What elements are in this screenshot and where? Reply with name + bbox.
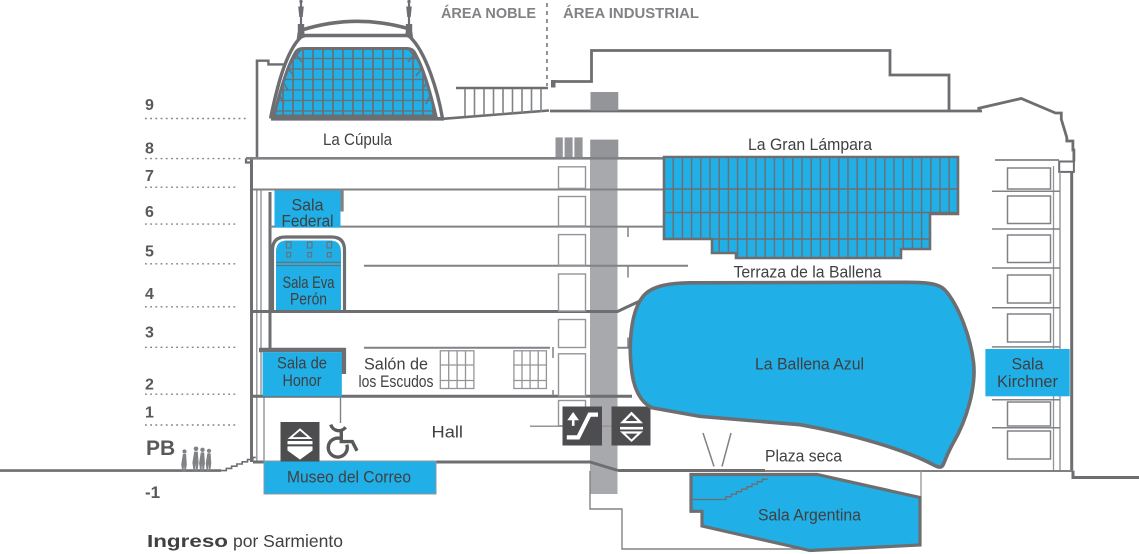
svg-text:Honor: Honor [283,371,322,390]
svg-text:PB: PB [146,437,175,460]
svg-text:La Gran Lámpara: La Gran Lámpara [748,135,873,154]
svg-text:Plaza seca: Plaza seca [765,447,842,466]
svg-text:2: 2 [145,377,154,394]
svg-text:ÁREA INDUSTRIAL: ÁREA INDUSTRIAL [563,5,699,22]
svg-text:Sala: Sala [1012,355,1045,374]
svg-text:Salón de: Salón de [364,355,428,374]
svg-text:8: 8 [145,141,154,158]
svg-text:Hall: Hall [432,423,464,442]
svg-text:Federal: Federal [282,212,334,231]
svg-text:Museo del Correo: Museo del Correo [287,469,411,487]
svg-text:7: 7 [145,168,154,185]
svg-text:Terraza de la Ballena: Terraza de la Ballena [734,263,882,282]
svg-text:9: 9 [145,97,154,114]
svg-text:Sala de: Sala de [277,354,327,373]
svg-text:6: 6 [145,204,154,221]
svg-text:por Sarmiento: por Sarmiento [233,531,343,551]
svg-text:los Escudos: los Escudos [359,372,434,391]
svg-text:La Cúpula: La Cúpula [323,130,392,149]
svg-text:Ingreso: Ingreso [147,531,228,551]
svg-text:3: 3 [145,325,154,342]
svg-text:-1: -1 [145,483,160,502]
svg-text:La Ballena Azul: La Ballena Azul [755,355,864,374]
svg-text:Sala Argentina: Sala Argentina [758,506,861,525]
svg-text:ÁREA NOBLE: ÁREA NOBLE [441,5,536,22]
svg-text:5: 5 [145,244,154,261]
svg-text:1: 1 [145,404,154,421]
svg-text:4: 4 [145,286,154,303]
svg-text:Perón: Perón [290,290,327,309]
svg-text:Kirchner: Kirchner [997,372,1058,391]
